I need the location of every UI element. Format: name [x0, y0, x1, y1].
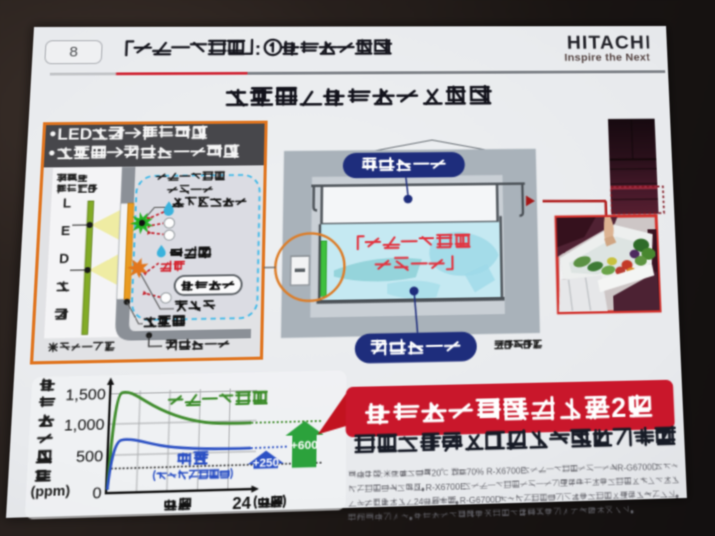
svg-text:R-G6700D: R-G6700D: [617, 462, 658, 473]
svg-text:20: 20: [431, 468, 441, 478]
svg-text:LED: LED: [57, 125, 93, 144]
svg-text:2: 2: [611, 392, 627, 424]
svg-text::: :: [255, 39, 262, 59]
svg-text:1,500: 1,500: [65, 386, 106, 404]
svg-text::: :: [381, 470, 383, 480]
svg-text:0: 0: [92, 485, 102, 503]
svg-text:(ppm): (ppm): [30, 482, 70, 500]
svg-text:24: 24: [232, 494, 251, 513]
svg-text:+600: +600: [291, 439, 319, 453]
svg-text:24: 24: [414, 497, 424, 507]
svg-text:D: D: [59, 251, 70, 267]
svg-text:R-G6700D: R-G6700D: [460, 495, 502, 506]
svg-text:500: 500: [76, 448, 104, 466]
svg-text:L: L: [63, 195, 72, 210]
svg-text:HITACHI: HITACHI: [567, 33, 652, 54]
svg-text:E: E: [61, 223, 71, 238]
svg-text:1,000: 1,000: [63, 417, 104, 435]
svg-text:70% R-X6700E: 70% R-X6700E: [467, 466, 527, 477]
svg-text:R-X6700E: R-X6700E: [426, 482, 467, 493]
svg-text:Inspire the Next: Inspire the Next: [564, 52, 650, 64]
svg-text:+250: +250: [252, 457, 279, 471]
